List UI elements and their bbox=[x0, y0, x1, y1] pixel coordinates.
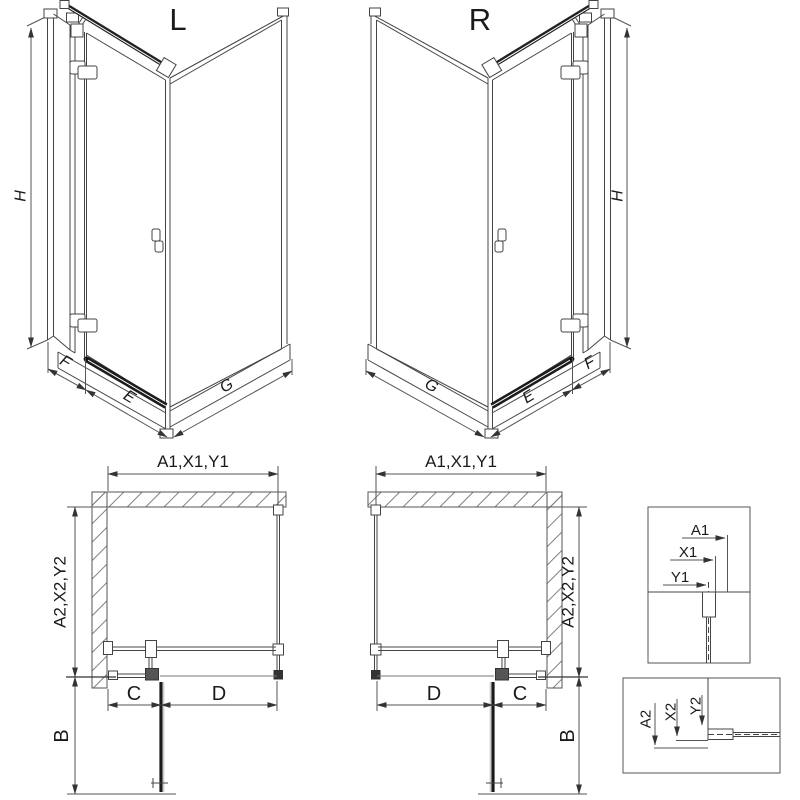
detail-dim-y2: Y2 bbox=[688, 697, 705, 715]
detail-dim-y1: Y1 bbox=[671, 569, 689, 586]
plan-right-walls bbox=[368, 492, 562, 688]
plan-right-dim-c: C bbox=[513, 683, 527, 705]
iso-right-dim-h: H bbox=[610, 190, 627, 202]
wall-top-right-plan bbox=[368, 492, 562, 507]
plan-left-walls bbox=[92, 492, 286, 688]
wall-side-left-plan bbox=[92, 492, 107, 688]
detail-dim-a2: A2 bbox=[638, 710, 655, 728]
wall-profile-detail bbox=[703, 592, 716, 617]
plan-left-dim-b: B bbox=[51, 729, 73, 742]
plan-right-dim-d: D bbox=[427, 683, 441, 705]
iso-view-left bbox=[27, 1, 292, 439]
drawing-canvas: L H F E G R H F E G A1,X1,Y1 A2,X2,Y2 C … bbox=[0, 0, 800, 800]
detail-dim-x1: X1 bbox=[679, 544, 697, 561]
iso-right-title: R bbox=[469, 2, 491, 37]
detail-dim-x2: X2 bbox=[663, 703, 680, 721]
plan-right-dim-a2: A2,X2,Y2 bbox=[559, 556, 578, 628]
iso-left-title: L bbox=[169, 2, 186, 37]
technical-drawing-page: L H F E G R H F E G A1,X1,Y1 A2,X2,Y2 C … bbox=[0, 0, 800, 800]
iso-left-dim-g: G bbox=[217, 376, 236, 397]
wall-top-left-plan bbox=[92, 492, 286, 507]
plan-right-dim-b: B bbox=[557, 729, 579, 742]
plan-left-dim-a1: A1,X1,Y1 bbox=[157, 452, 229, 471]
iso-right-dim-g: G bbox=[422, 376, 441, 397]
plan-left-dim-a2: A2,X2,Y2 bbox=[51, 556, 70, 628]
detail-dim-a1: A1 bbox=[691, 522, 709, 539]
plan-left-dim-d: D bbox=[212, 683, 226, 705]
plan-right-dim-a1: A1,X1,Y1 bbox=[425, 452, 497, 471]
iso-left-dim-f: F bbox=[57, 352, 75, 372]
iso-left-dim-h: H bbox=[13, 190, 30, 202]
iso-view-right bbox=[366, 1, 631, 439]
plan-left-dim-c: C bbox=[127, 683, 141, 705]
